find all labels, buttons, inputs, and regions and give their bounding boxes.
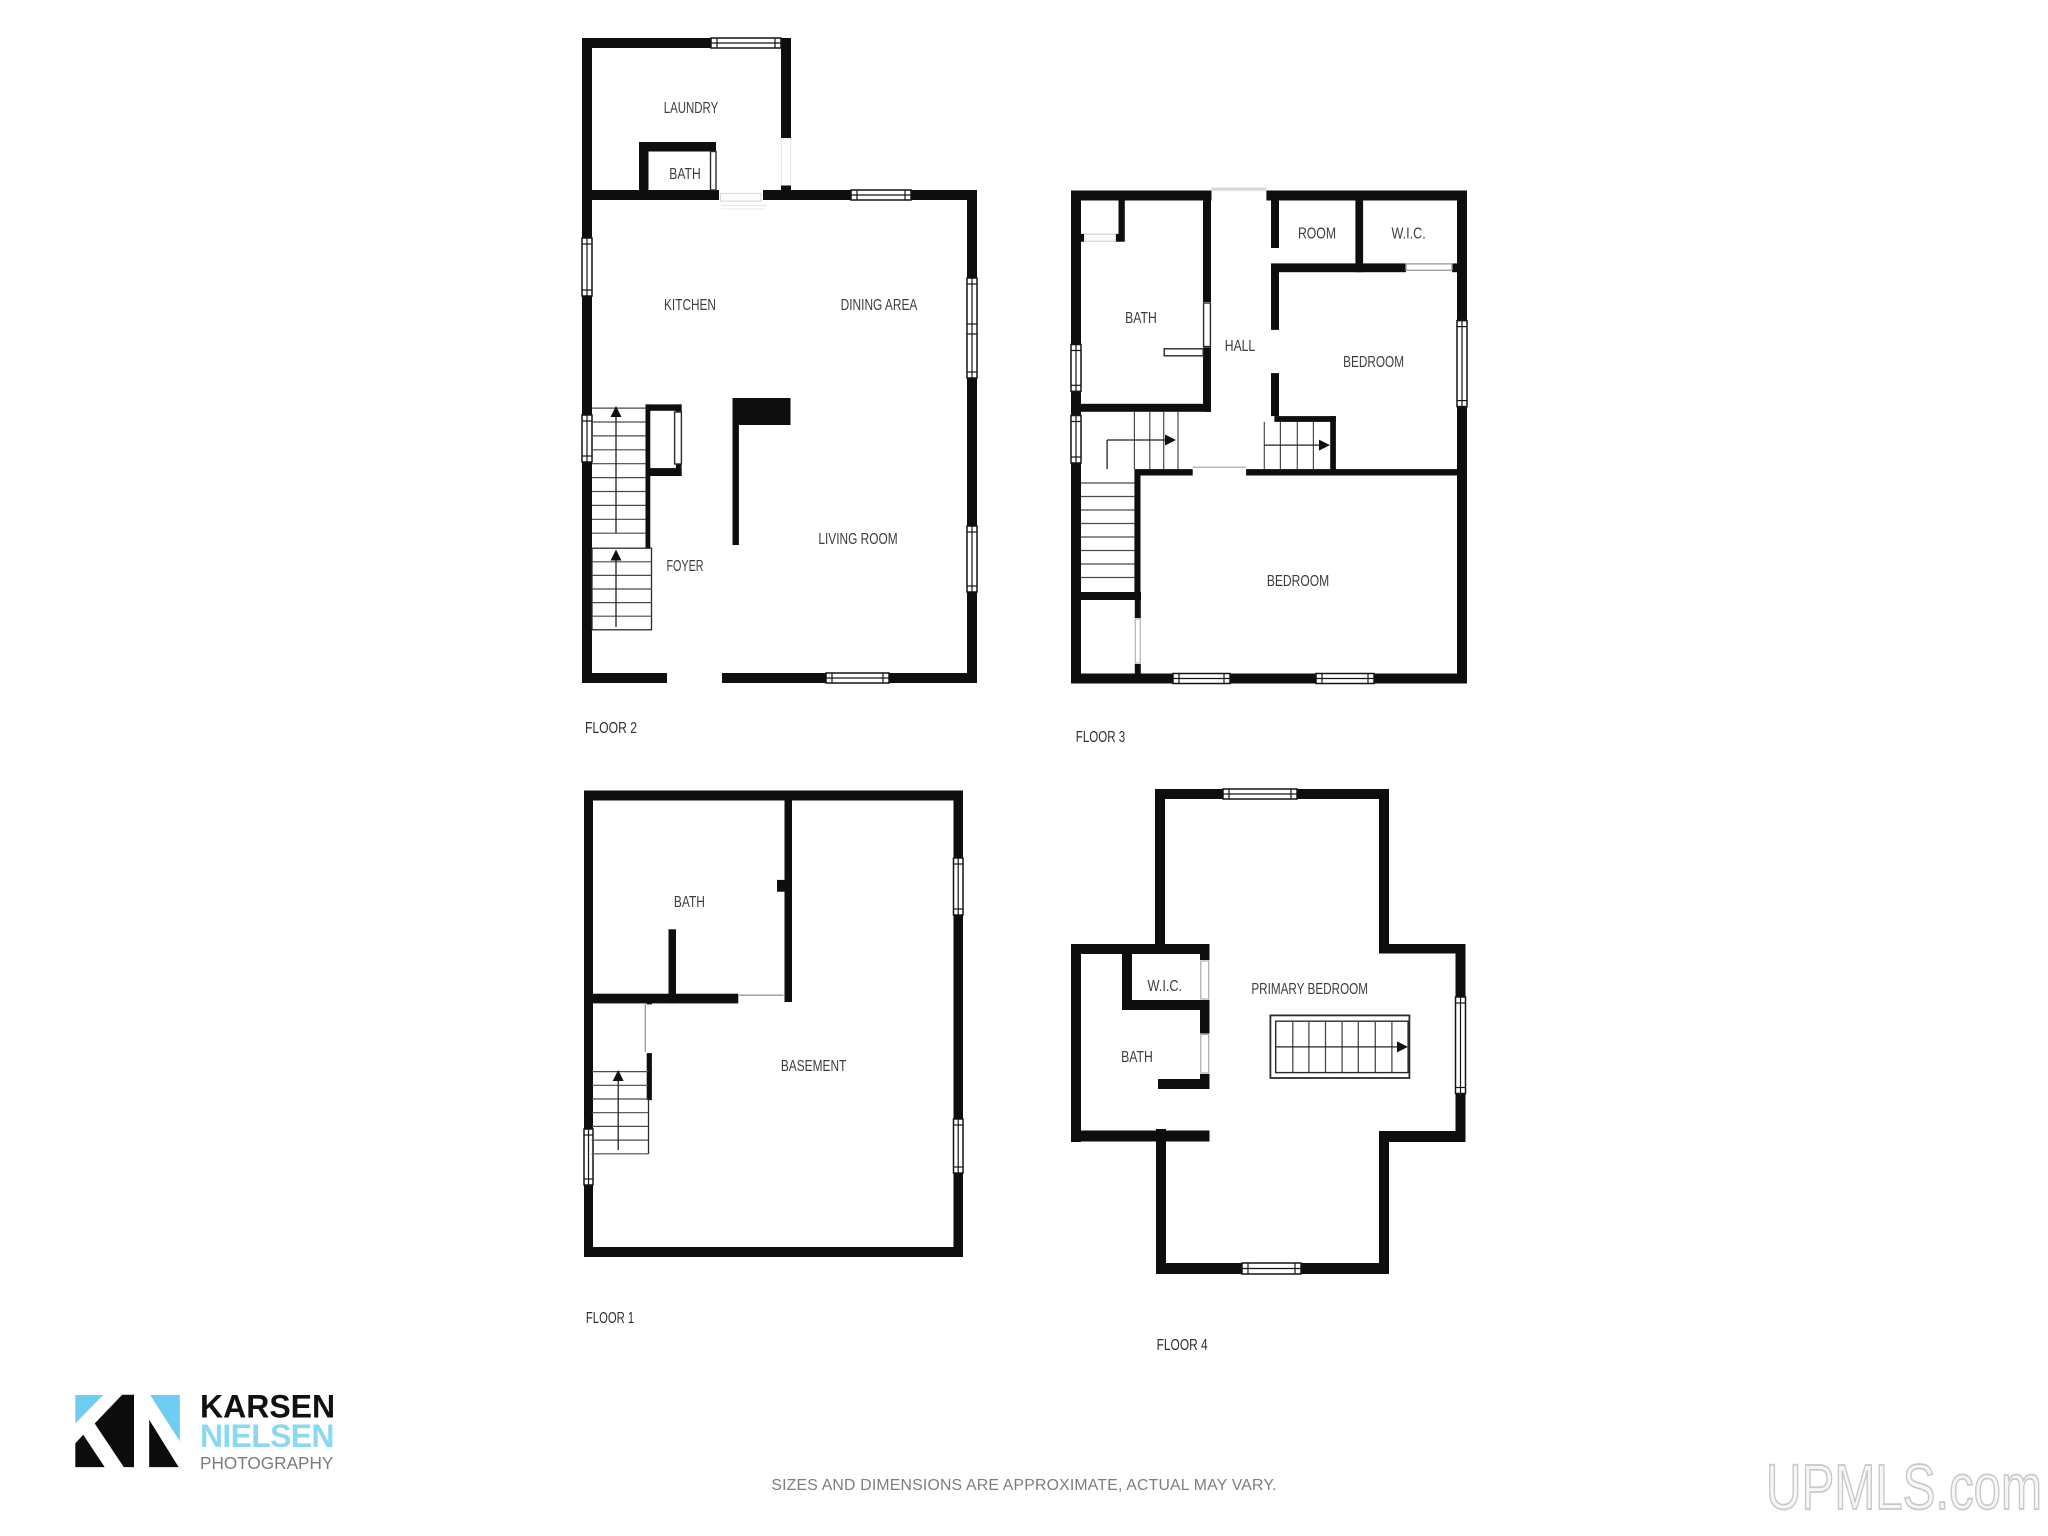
svg-text:ROOM: ROOM <box>1298 226 1336 243</box>
svg-text:BATH: BATH <box>669 166 700 183</box>
svg-text:LAUNDRY: LAUNDRY <box>664 100 718 117</box>
svg-text:BEDROOM: BEDROOM <box>1343 354 1404 371</box>
svg-text:DINING AREA: DINING AREA <box>841 297 918 314</box>
svg-text:FLOOR 4: FLOOR 4 <box>1157 1337 1208 1354</box>
svg-text:BEDROOM: BEDROOM <box>1267 573 1329 590</box>
svg-text:BATH: BATH <box>674 894 705 911</box>
svg-text:BATH: BATH <box>1121 1049 1153 1066</box>
svg-text:PHOTOGRAPHY: PHOTOGRAPHY <box>200 1453 334 1473</box>
svg-text:BASEMENT: BASEMENT <box>781 1058 847 1075</box>
svg-text:NIELSEN: NIELSEN <box>200 1418 334 1454</box>
svg-text:FLOOR 2: FLOOR 2 <box>585 720 637 737</box>
svg-text:FOYER: FOYER <box>666 558 703 575</box>
svg-text:KITCHEN: KITCHEN <box>664 297 716 314</box>
svg-text:BATH: BATH <box>1125 310 1157 327</box>
svg-text:LIVING ROOM: LIVING ROOM <box>818 531 897 548</box>
svg-text:FLOOR 3: FLOOR 3 <box>1076 729 1125 746</box>
svg-text:W.I.C.: W.I.C. <box>1392 226 1426 243</box>
svg-text:SIZES AND DIMENSIONS ARE APPRO: SIZES AND DIMENSIONS ARE APPROXIMATE, AC… <box>771 1477 1276 1494</box>
svg-text:W.I.C.: W.I.C. <box>1148 978 1183 995</box>
svg-text:PRIMARY BEDROOM: PRIMARY BEDROOM <box>1251 981 1368 998</box>
svg-text:UPMLS.com: UPMLS.com <box>1766 1451 2042 1523</box>
svg-text:FLOOR 1: FLOOR 1 <box>586 1310 634 1327</box>
svg-text:HALL: HALL <box>1225 338 1256 355</box>
